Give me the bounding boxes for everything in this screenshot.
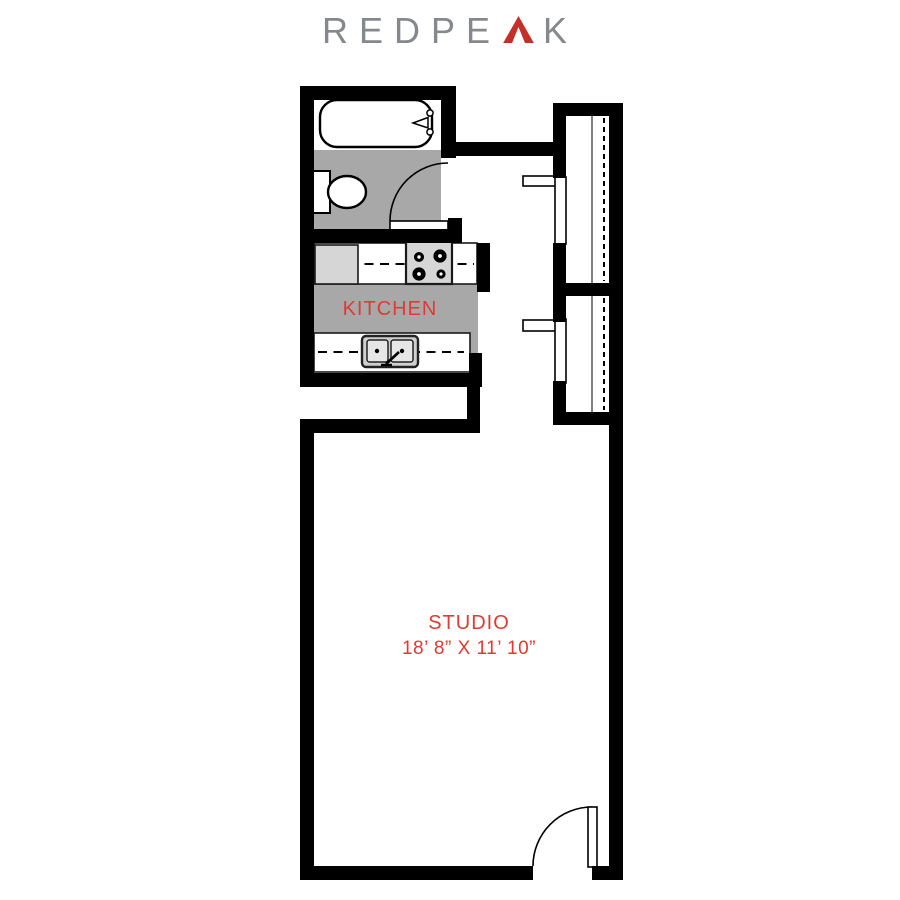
wall-segment [300,866,533,880]
wall-segment [477,243,490,292]
wall-segment [441,142,557,156]
wall-segment [553,296,566,322]
wall-segment [553,412,623,425]
wall-segment [553,283,623,296]
studio-dimensions: 18’ 8” X 11’ 10” [402,638,536,659]
refrigerator [315,245,358,284]
wall-segment [300,86,456,100]
kitchen-floor-edge [470,333,478,355]
bathroom-door-leaf [390,221,448,230]
closet-2-door-panel-2 [555,319,566,383]
kitchen-label: KITCHEN [343,298,438,320]
wall-segment [300,419,314,880]
entry-door-leaf [588,807,597,867]
floorplan-page: REDPE K [0,0,900,900]
wall-segment [300,373,482,387]
entry-door-arc [533,807,592,866]
closet-1-door-panel [523,176,557,186]
studio-label: STUDIO [428,612,510,634]
stove [406,240,452,284]
floorplan-drawing: KITCHEN STUDIO 18’ 8” X 11’ 10” [0,0,900,900]
wall-segment [553,103,566,178]
closet-1-door-panel-2 [555,177,566,244]
wall-segment [300,229,462,243]
double-sink [362,336,418,367]
wall-segment [300,419,480,433]
wall-segment [609,103,623,880]
wall-segment [448,218,462,243]
entry-door [533,807,597,867]
toilet-bowl [328,176,366,208]
